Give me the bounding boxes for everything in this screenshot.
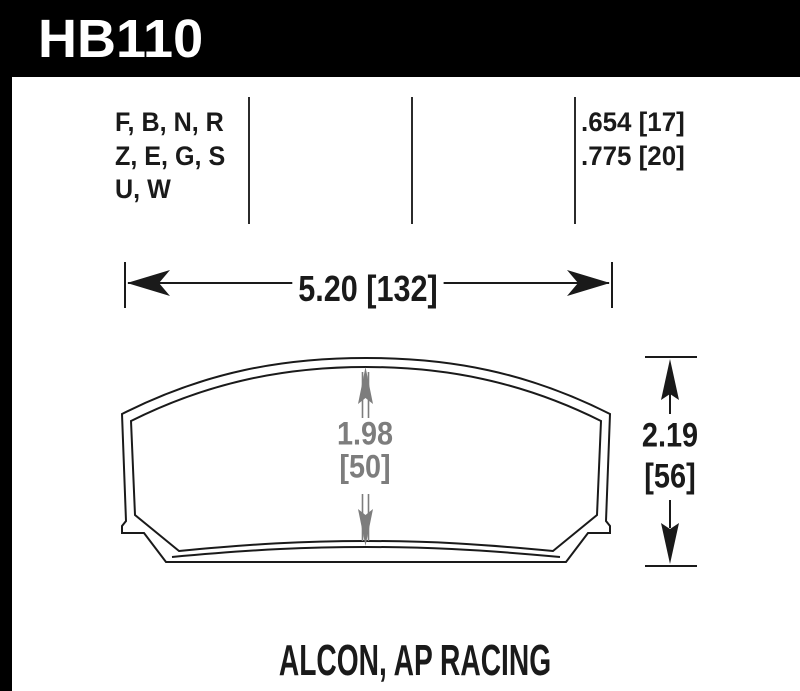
width-dimension-label: 5.20 [132]: [292, 268, 443, 310]
caliper-applications: ALCON, AP RACING: [279, 636, 551, 686]
pad-height-metric: [50]: [339, 449, 390, 486]
pad-height-value: 1.98: [337, 416, 393, 453]
pad-spec-diagram-page: { "part": { "number": "HB110" }, "compou…: [0, 0, 800, 691]
overall-height-value: 2.19: [642, 417, 698, 456]
overall-height-metric: [56]: [644, 458, 695, 497]
pad-bottom-edge-line: [172, 547, 560, 557]
pad-drawing: [0, 0, 800, 691]
